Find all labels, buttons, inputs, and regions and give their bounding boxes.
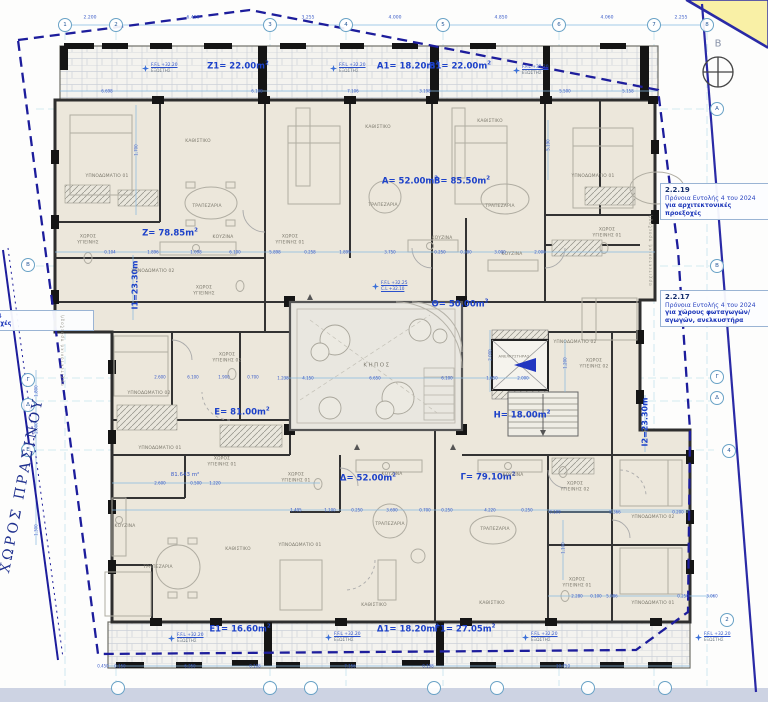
grid-bubble — [111, 681, 125, 695]
area-sup: 2 — [486, 176, 490, 182]
level-marker: F.F.L +32.20ΕΞΩΣΤΗΣ — [330, 63, 366, 73]
room-label: ΧΩΡΟΣ ΥΓΙΕΙΝΗΣ 02 — [577, 358, 611, 369]
note-box: 2.2.19Πρόνοια Εντολής 4 του 2024για αρχι… — [660, 183, 768, 220]
grid-dimension: 2.200 — [84, 16, 97, 21]
level-marker: F.F.L +32.20ΕΞΩΣΤΗΣ — [522, 632, 558, 642]
dimension-text: 6.100 — [441, 376, 452, 381]
area-label: Θ= 50.00m2 — [432, 299, 489, 310]
area-label: E= 81.00m2 — [214, 407, 269, 418]
room-label: ΑΝΕΛΚΥΣΤΗΡΑΣ — [499, 355, 530, 360]
grid-bubble: Δ — [710, 391, 724, 405]
dimension-text: 1.100 — [561, 542, 566, 553]
level-text: F.F.L +32.20ΕΞΩΣΤΗΣ — [151, 63, 178, 73]
level-diamond-icon — [695, 634, 702, 641]
room-label: ΚΑΘΙΣΤΙΚΟ — [479, 601, 505, 607]
room-label: ΤΡΑΠΕΖΑΡΙΑ — [480, 527, 509, 533]
area-label: B1= 22.00m2 — [429, 61, 491, 72]
grid-bubble: 2 — [109, 18, 123, 32]
level-diamond-icon — [372, 283, 379, 290]
area-label: E1= 16.60m2 — [209, 624, 270, 635]
dimension-text: 6.108 — [251, 89, 262, 94]
level-sub: ΕΞΩΣΤΗΣ — [704, 637, 731, 642]
grid-bubble: Γ — [21, 373, 35, 387]
dimension-text: 1.900 — [218, 375, 229, 380]
room-label: ΚΟΥΖΙΝΑ — [381, 472, 402, 478]
grid-bubble — [263, 681, 277, 695]
level-sub: ΕΞΩΣΤΗΣ — [339, 68, 366, 73]
grid-bubble: 4 — [339, 18, 353, 32]
level-text: F.F.L +32.20ΕΞΩΣΤΗΣ — [339, 63, 366, 73]
note-id: 2.2.19 — [665, 186, 768, 194]
room-label: ΥΠΝΟΔΩΜΑΤΙΟ 02 — [127, 391, 170, 397]
dimension-text: 1.700 — [134, 144, 139, 155]
dimension-text: 0.200 — [672, 510, 683, 515]
dimension-text: 2.280 — [571, 594, 582, 599]
dimension-text: 1.896 — [147, 250, 158, 255]
dimension-text: 0.500 — [190, 481, 201, 486]
room-label: ΚΑΘΙΣΤΙΚΟ — [361, 603, 387, 609]
area-label: B= 85.50m2 — [434, 176, 490, 187]
area-sup: 2 — [194, 228, 198, 234]
level-diamond-icon — [325, 634, 332, 641]
area-label: Ι1=23.30m — [131, 261, 140, 310]
area-label: A= 52.00m2 — [382, 176, 438, 187]
north-label: Β — [715, 39, 722, 50]
room-label: ΤΡΑΠΕΖΑΡΙΑ — [485, 204, 514, 210]
dimension-text: 0.700 — [419, 508, 430, 513]
dimension-text: 2.000 — [534, 250, 545, 255]
grid-bubble: 7 — [647, 18, 661, 32]
grid-bubble: Γ — [710, 370, 724, 384]
level-diamond-icon — [522, 634, 529, 641]
level-sub: ΕΞΩΣΤΗΣ — [334, 637, 361, 642]
dimension-text: 2.600 — [154, 375, 165, 380]
dimension-text: 0.250 — [677, 594, 688, 599]
dimension-text: 5.366 — [609, 510, 620, 515]
area-sup: 2 — [265, 61, 269, 67]
dimension-text: 0.108 — [249, 664, 260, 669]
room-label: ΚΑΘΙΣΤΙΚΟ — [225, 547, 251, 553]
dimension-text: 6.100 — [187, 375, 198, 380]
dimension-text: 3.750 — [384, 250, 395, 255]
room-label: ΚΑΘΙΣΤΙΚΟ — [185, 139, 211, 145]
note-line: για αρχιτεκτονικές προεξοχές — [665, 202, 768, 217]
dimension-text: 0.250 — [351, 508, 362, 513]
room-label: ΚΗΠΟΣ — [363, 362, 390, 369]
dimension-text: 0.104 — [104, 250, 115, 255]
dimension-text: 5.500 — [559, 89, 570, 94]
level-sub: C.L +32.10 — [381, 286, 408, 291]
dimension-text: 2.000 — [488, 349, 493, 360]
grid-bubble — [490, 681, 504, 695]
level-diamond-icon — [142, 65, 149, 72]
grid-bubble: 4 — [722, 444, 736, 458]
level-text: F.F.L +32.25C.L +32.10 — [381, 281, 408, 291]
grid-bubble: 3 — [263, 18, 277, 32]
area-sup: 2 — [487, 61, 491, 67]
note-line: εκτονικές προεξοχές — [0, 320, 89, 327]
grid-bubble: 5 — [436, 18, 450, 32]
room-label: ΧΩΡΟΣ ΥΓΙΕΙΝΗΣ — [187, 285, 221, 296]
grid-dimension: 2.255 — [675, 16, 688, 21]
room-label: ΥΠΝΟΔΩΜΑΤΙΟ 01 — [138, 446, 181, 452]
level-marker: F.F.L +32.20ΕΞΩΣΤΗΣ — [325, 632, 361, 642]
grid-dimension: 4.850 — [495, 16, 508, 21]
area-label: Z= 78.85m2 — [142, 228, 198, 239]
room-label: ΧΩΡΟΣ ΥΓΙΕΙΝΗΣ — [71, 234, 105, 245]
level-text: F.F.L +32.20ΕΞΩΣΤΗΣ — [522, 65, 549, 75]
dimension-text: 1.098 — [190, 250, 201, 255]
grid-bubble: 6 — [552, 18, 566, 32]
grid-bubble: Β — [21, 258, 35, 272]
room-label: ΤΡΑΠΕΖΑΡΙΑ — [143, 565, 172, 571]
dimension-text: 0.280 — [460, 250, 471, 255]
level-marker: F.F.L +32.20ΕΞΩΣΤΗΣ — [695, 632, 731, 642]
vertical-label: ΧΩΡΟΣ ΠΡΑΣΙΝΟΥ — [0, 396, 47, 575]
dimension-text: 0.250 — [441, 508, 452, 513]
dimension-text: 4.220 — [484, 508, 495, 513]
room-label: ΚΟΥΖΙΝΑ — [212, 235, 233, 241]
level-text: F.F.L +32.20ΕΞΩΣΤΗΣ — [531, 632, 558, 642]
grid-bubble — [427, 681, 441, 695]
area-sup: 2 — [267, 624, 271, 630]
dimension-text: 6.350 — [184, 664, 195, 669]
dimension-text: 7.156 — [344, 664, 355, 669]
vertical-label: αρχιτεκτονική προεξοχή — [60, 314, 65, 385]
grid-bubble: 2 — [720, 613, 734, 627]
dimension-text: 0.150 — [114, 664, 125, 669]
grid-bubble: Β — [710, 259, 724, 273]
dimension-text: 0.198 — [422, 664, 433, 669]
dimension-text: 0.100 — [549, 510, 560, 515]
dimension-text: 5.086 — [606, 594, 617, 599]
dimension-text: 1.100 — [324, 508, 335, 513]
grid-dimension: 3.255 — [302, 16, 315, 21]
grid-bubble: 1 — [58, 18, 72, 32]
dimension-text: 0.250 — [521, 508, 532, 513]
room-label: ΧΩΡΟΣ ΥΓΙΕΙΝΗΣ 01 — [560, 577, 594, 588]
dimension-text: 7.106 — [347, 89, 358, 94]
vertical-label: αρχιτεκτονική προεξοχή — [648, 214, 653, 285]
room-label: ΥΠΝΟΔΩΜΑΤΙΟ 01 — [571, 174, 614, 180]
room-label: ΥΠΝΟΔΩΜΑΤΙΟ 02 — [631, 515, 674, 521]
dimension-text: 1.220 — [209, 481, 220, 486]
room-label: ΤΡΑΠΕΖΑΡΙΑ — [192, 204, 221, 210]
dimension-text: 3.000 — [494, 250, 505, 255]
level-text: F.F.L +32.20ΕΞΩΣΤΗΣ — [704, 632, 731, 642]
area-sup: 2 — [266, 407, 270, 413]
room-label: ΤΡΑΠΕΖΑΡΙΑ — [368, 203, 397, 209]
dimension-text: 0.258 — [304, 250, 315, 255]
grid-dimension: 6.450 — [187, 16, 200, 21]
dimension-text: 5.158 — [622, 89, 633, 94]
level-marker: F.F.L +32.20ΕΞΩΣΤΗΣ — [168, 633, 204, 643]
dimension-text: 5.190 — [546, 139, 551, 150]
room-label: ΥΠΝΟΔΩΜΑΤΙΟ 01 — [85, 174, 128, 180]
dimension-text: 10.750 — [556, 664, 570, 669]
dimension-text: 4.150 — [302, 376, 313, 381]
note-line: για χώρους φωταγωγών/ — [665, 309, 768, 316]
area-label: H= 18.00m2 — [494, 410, 551, 421]
area-label: Γ1= 27.05m2 — [435, 624, 496, 635]
dimension-text: 3.198 — [419, 89, 430, 94]
room-label: ΧΩΡΟΣ ΥΓΙΕΙΝΗΣ 01 — [279, 472, 313, 483]
area-sup: 2 — [547, 410, 551, 416]
room-label: ΚΑΘΙΣΤΙΚΟ — [477, 119, 503, 125]
note-line: αγωγών, ανελκυστήρα — [665, 317, 768, 324]
grid-bubble — [658, 681, 672, 695]
grid-dimension: 4.060 — [601, 16, 614, 21]
level-diamond-icon — [168, 635, 175, 642]
area-label: Δ1= 18.20m2 — [377, 624, 439, 635]
dimension-text: 0.100 — [590, 594, 601, 599]
dimension-text: 0.450 — [97, 664, 108, 669]
dimension-text: 1.495 — [290, 508, 301, 513]
grid-bubble: Α — [710, 102, 724, 116]
level-sub: ΕΞΩΣΤΗΣ — [151, 68, 178, 73]
note-box: 2.2.17Πρόνοια Εντολής 4 του 2024για χώρο… — [660, 290, 768, 327]
room-label: ΥΠΝΟΔΩΜΑΤΙΟ 02 — [553, 340, 596, 346]
floor-plan-canvas: Z1= 22.00m2A1= 18.20m2B1= 22.00m2Z= 78.8… — [0, 0, 768, 702]
level-sub: ΕΞΩΣΤΗΣ — [177, 638, 204, 643]
room-label: ΚΟΥΖΙΝΑ — [431, 236, 452, 242]
dimension-text: 1.800 — [34, 385, 39, 396]
room-label: ΧΩΡΟΣ ΥΓΙΕΙΝΗΣ 02 — [558, 481, 592, 492]
room-label: ΧΩΡΟΣ ΥΓΙΕΙΝΗΣ 01 — [590, 227, 624, 238]
room-label: ΥΠΝΟΔΩΜΑΤΙΟ 01 — [278, 543, 321, 549]
room-label: ΚΑΘΙΣΤΙΚΟ — [365, 125, 391, 131]
dimension-text: 1.200 — [563, 357, 568, 368]
area-sup: 2 — [485, 299, 489, 305]
dimension-text: 5.898 — [269, 250, 280, 255]
room-label: ΤΡΑΠΕΖΑΡΙΑ — [375, 522, 404, 528]
grid-bubble — [581, 681, 595, 695]
note-box: Εντολής 4 του 2024εκτονικές προεξοχές — [0, 310, 94, 331]
level-text: F.F.L +32.20ΕΞΩΣΤΗΣ — [177, 633, 204, 643]
grid-bubble: 8 — [700, 18, 714, 32]
level-sub: ΕΞΩΣΤΗΣ — [522, 70, 549, 75]
dimension-text: 81.643 m² — [171, 472, 200, 478]
room-label: ΥΠΝΟΔΩΜΑΤΙΟ 02 — [131, 269, 174, 275]
dimension-text: 6.698 — [101, 89, 112, 94]
dimension-text: 0.700 — [247, 375, 258, 380]
dimension-text: 1.899 — [339, 250, 350, 255]
level-marker: F.F.L +32.20ΕΞΩΣΤΗΣ — [513, 65, 549, 75]
dimension-text: 3.690 — [386, 508, 397, 513]
grid-bubble — [304, 681, 318, 695]
annotation-overlay: Z1= 22.00m2A1= 18.20m2B1= 22.00m2Z= 78.8… — [0, 0, 768, 702]
dimension-text: 1.238 — [277, 376, 288, 381]
room-label: ΧΩΡΟΣ ΥΓΙΕΙΝΗΣ 01 — [205, 456, 239, 467]
room-label: ΚΟΥΖΙΝΑ — [114, 524, 135, 530]
note-line: Εντολής 4 του 2024 — [0, 313, 89, 320]
dimension-text: 2.600 — [154, 481, 165, 486]
room-label: ΥΠΝΟΔΩΜΑΤΙΟ 01 — [631, 601, 674, 607]
dimension-text: 3.060 — [706, 594, 717, 599]
grid-dimension: 4.000 — [389, 16, 402, 21]
room-label: ΧΩΡΟΣ ΥΓΙΕΙΝΗΣ 01 — [273, 234, 307, 245]
level-sub: ΕΞΩΣΤΗΣ — [531, 637, 558, 642]
dimension-text: 2.000 — [517, 376, 528, 381]
note-id: 2.2.17 — [665, 293, 768, 301]
level-diamond-icon — [513, 67, 520, 74]
area-sup: 2 — [492, 624, 496, 630]
dimension-text: 1.300 — [34, 524, 39, 535]
level-marker: F.F.L +32.20ΕΞΩΣΤΗΣ — [142, 63, 178, 73]
dimension-text: 6.650 — [369, 376, 380, 381]
level-text: F.F.L +32.20ΕΞΩΣΤΗΣ — [334, 632, 361, 642]
area-label: Z1= 22.00m2 — [207, 61, 269, 72]
dimension-text: 0.250 — [434, 250, 445, 255]
room-label: ΚΟΥΖΙΝΑ — [502, 473, 523, 479]
room-label: ΧΩΡΟΣ ΥΓΙΕΙΝΗΣ 02 — [210, 352, 244, 363]
level-marker: F.F.L +32.25C.L +32.10 — [372, 281, 408, 291]
dimension-text: 1.650 — [486, 376, 497, 381]
level-diamond-icon — [330, 65, 337, 72]
area-label: Ι2=23.30m — [641, 398, 650, 447]
dimension-text: 6.100 — [229, 250, 240, 255]
